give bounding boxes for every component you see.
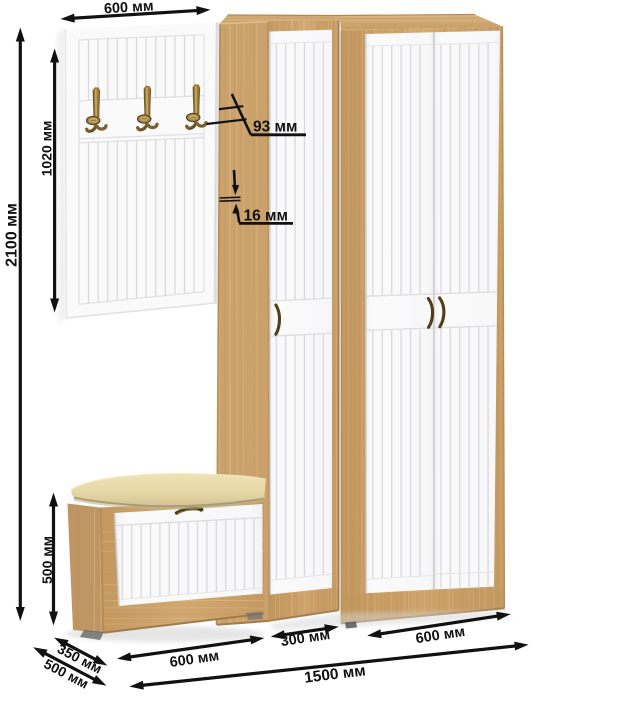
svg-text:600 мм: 600 мм [103, 0, 154, 17]
svg-text:300 мм: 300 мм [280, 627, 332, 650]
svg-text:1020 мм: 1020 мм [39, 121, 55, 177]
svg-text:500 мм: 500 мм [39, 536, 55, 584]
svg-text:93 мм: 93 мм [253, 119, 297, 136]
svg-text:16 мм: 16 мм [244, 208, 288, 225]
svg-text:2100 мм: 2100 мм [3, 203, 20, 267]
